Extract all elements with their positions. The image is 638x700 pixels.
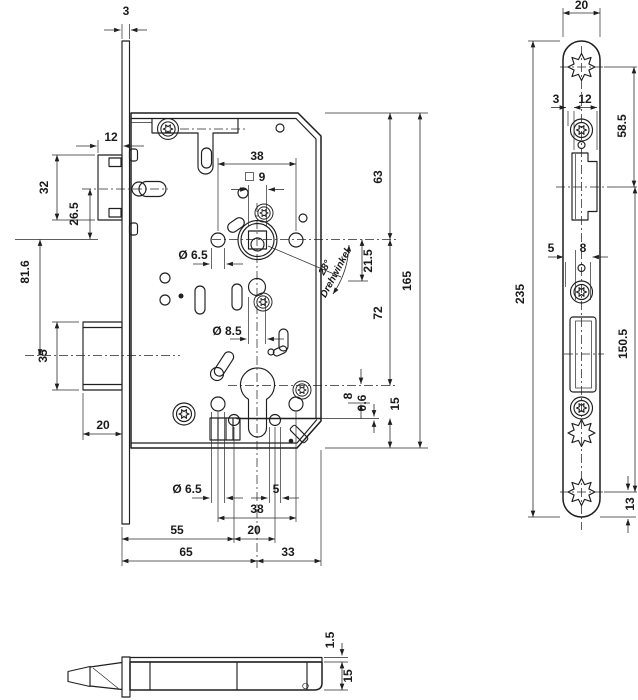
- cylinder-hole: [240, 368, 274, 437]
- dim-bolt-protrusion: 20: [96, 418, 110, 432]
- dim-slot-width: 8: [580, 241, 587, 255]
- dim-backset: 65: [179, 545, 193, 559]
- dim-latch-axis-to-bottom-screw: 150.5: [616, 329, 630, 359]
- bottom-view: 1.5 15: [68, 631, 355, 697]
- internal-mechanism-details: [160, 124, 309, 444]
- deadbolt: [83, 322, 122, 390]
- dim-nut-to-cylinder: 72: [371, 306, 385, 320]
- dim-faceplate-thickness: 3: [123, 4, 130, 18]
- dim-screw-to-latch-axis: 58.5: [615, 114, 629, 138]
- dim-plate-edge-offset: 3: [553, 92, 560, 106]
- main-view-dimensions: 3 12 32 26.5 81.6 35 20 38 9 Ø 6.5: [18, 4, 428, 566]
- dim-small-hole-spacing: 20: [247, 523, 261, 537]
- dim-spindle-square: 9: [259, 170, 266, 184]
- dim-plate-length: 235: [513, 284, 527, 304]
- dim-nut-to-bolt-axis: 81.6: [18, 260, 32, 284]
- dim-small-hole-dia: 5: [273, 482, 280, 496]
- dim-flange-offset: 0.6: [355, 394, 369, 411]
- dim-slot-offset: 5: [548, 241, 555, 255]
- dim-plate-width: 20: [575, 0, 589, 12]
- latch-bolt: [98, 155, 166, 220]
- dim-latch-height: 32: [37, 181, 51, 195]
- dim-top-to-nut: 63: [371, 170, 385, 184]
- dim-center-hole-dia: Ø 8.5: [212, 324, 242, 338]
- dim-latch-protrusion: 12: [104, 130, 118, 144]
- drawing-canvas: 3 12 32 26.5 81.6 35 20 38 9 Ø 6.5: [0, 0, 638, 700]
- dim-case-height: 165: [400, 271, 414, 291]
- technical-drawing-mortise-lock: 3 12 32 26.5 81.6 35 20 38 9 Ø 6.5: [0, 0, 638, 700]
- dim-cyl-to-row: 8: [341, 392, 355, 399]
- dim-top-hole-spacing: 38: [250, 149, 264, 163]
- latch-bevel-bottom: [68, 663, 122, 690]
- screw-heads: [158, 119, 311, 425]
- dim-axis-to-back: 33: [281, 545, 295, 559]
- dim-case-depth: 15: [341, 669, 355, 683]
- dim-cover-thickness: 1.5: [323, 631, 337, 648]
- dim-bolt-height: 35: [36, 349, 50, 363]
- dim-flange-to-bottom: 15: [388, 397, 402, 411]
- dim-bottom-hole-spacing: 38: [250, 502, 264, 516]
- dim-bottom-hole-dia: Ø 6.5: [172, 482, 202, 496]
- dim-latch-cutout-width: 12: [578, 92, 592, 106]
- follower-nut: [238, 221, 277, 260]
- bolt-cutout: [570, 317, 596, 392]
- dim-latch-to-nut: 26.5: [67, 202, 81, 226]
- centerlines: [15, 46, 614, 568]
- dim-top-hole-dia: Ø 6.5: [178, 248, 208, 262]
- faceplate-view-dimensions: 20 235 3 12 58.5 5 8 150.5 13: [513, 0, 637, 533]
- dim-backset-alt: 55: [170, 523, 184, 537]
- dim-angle-travel: 21.5: [361, 249, 375, 273]
- dim-bottom-screw-to-end: 13: [623, 497, 637, 511]
